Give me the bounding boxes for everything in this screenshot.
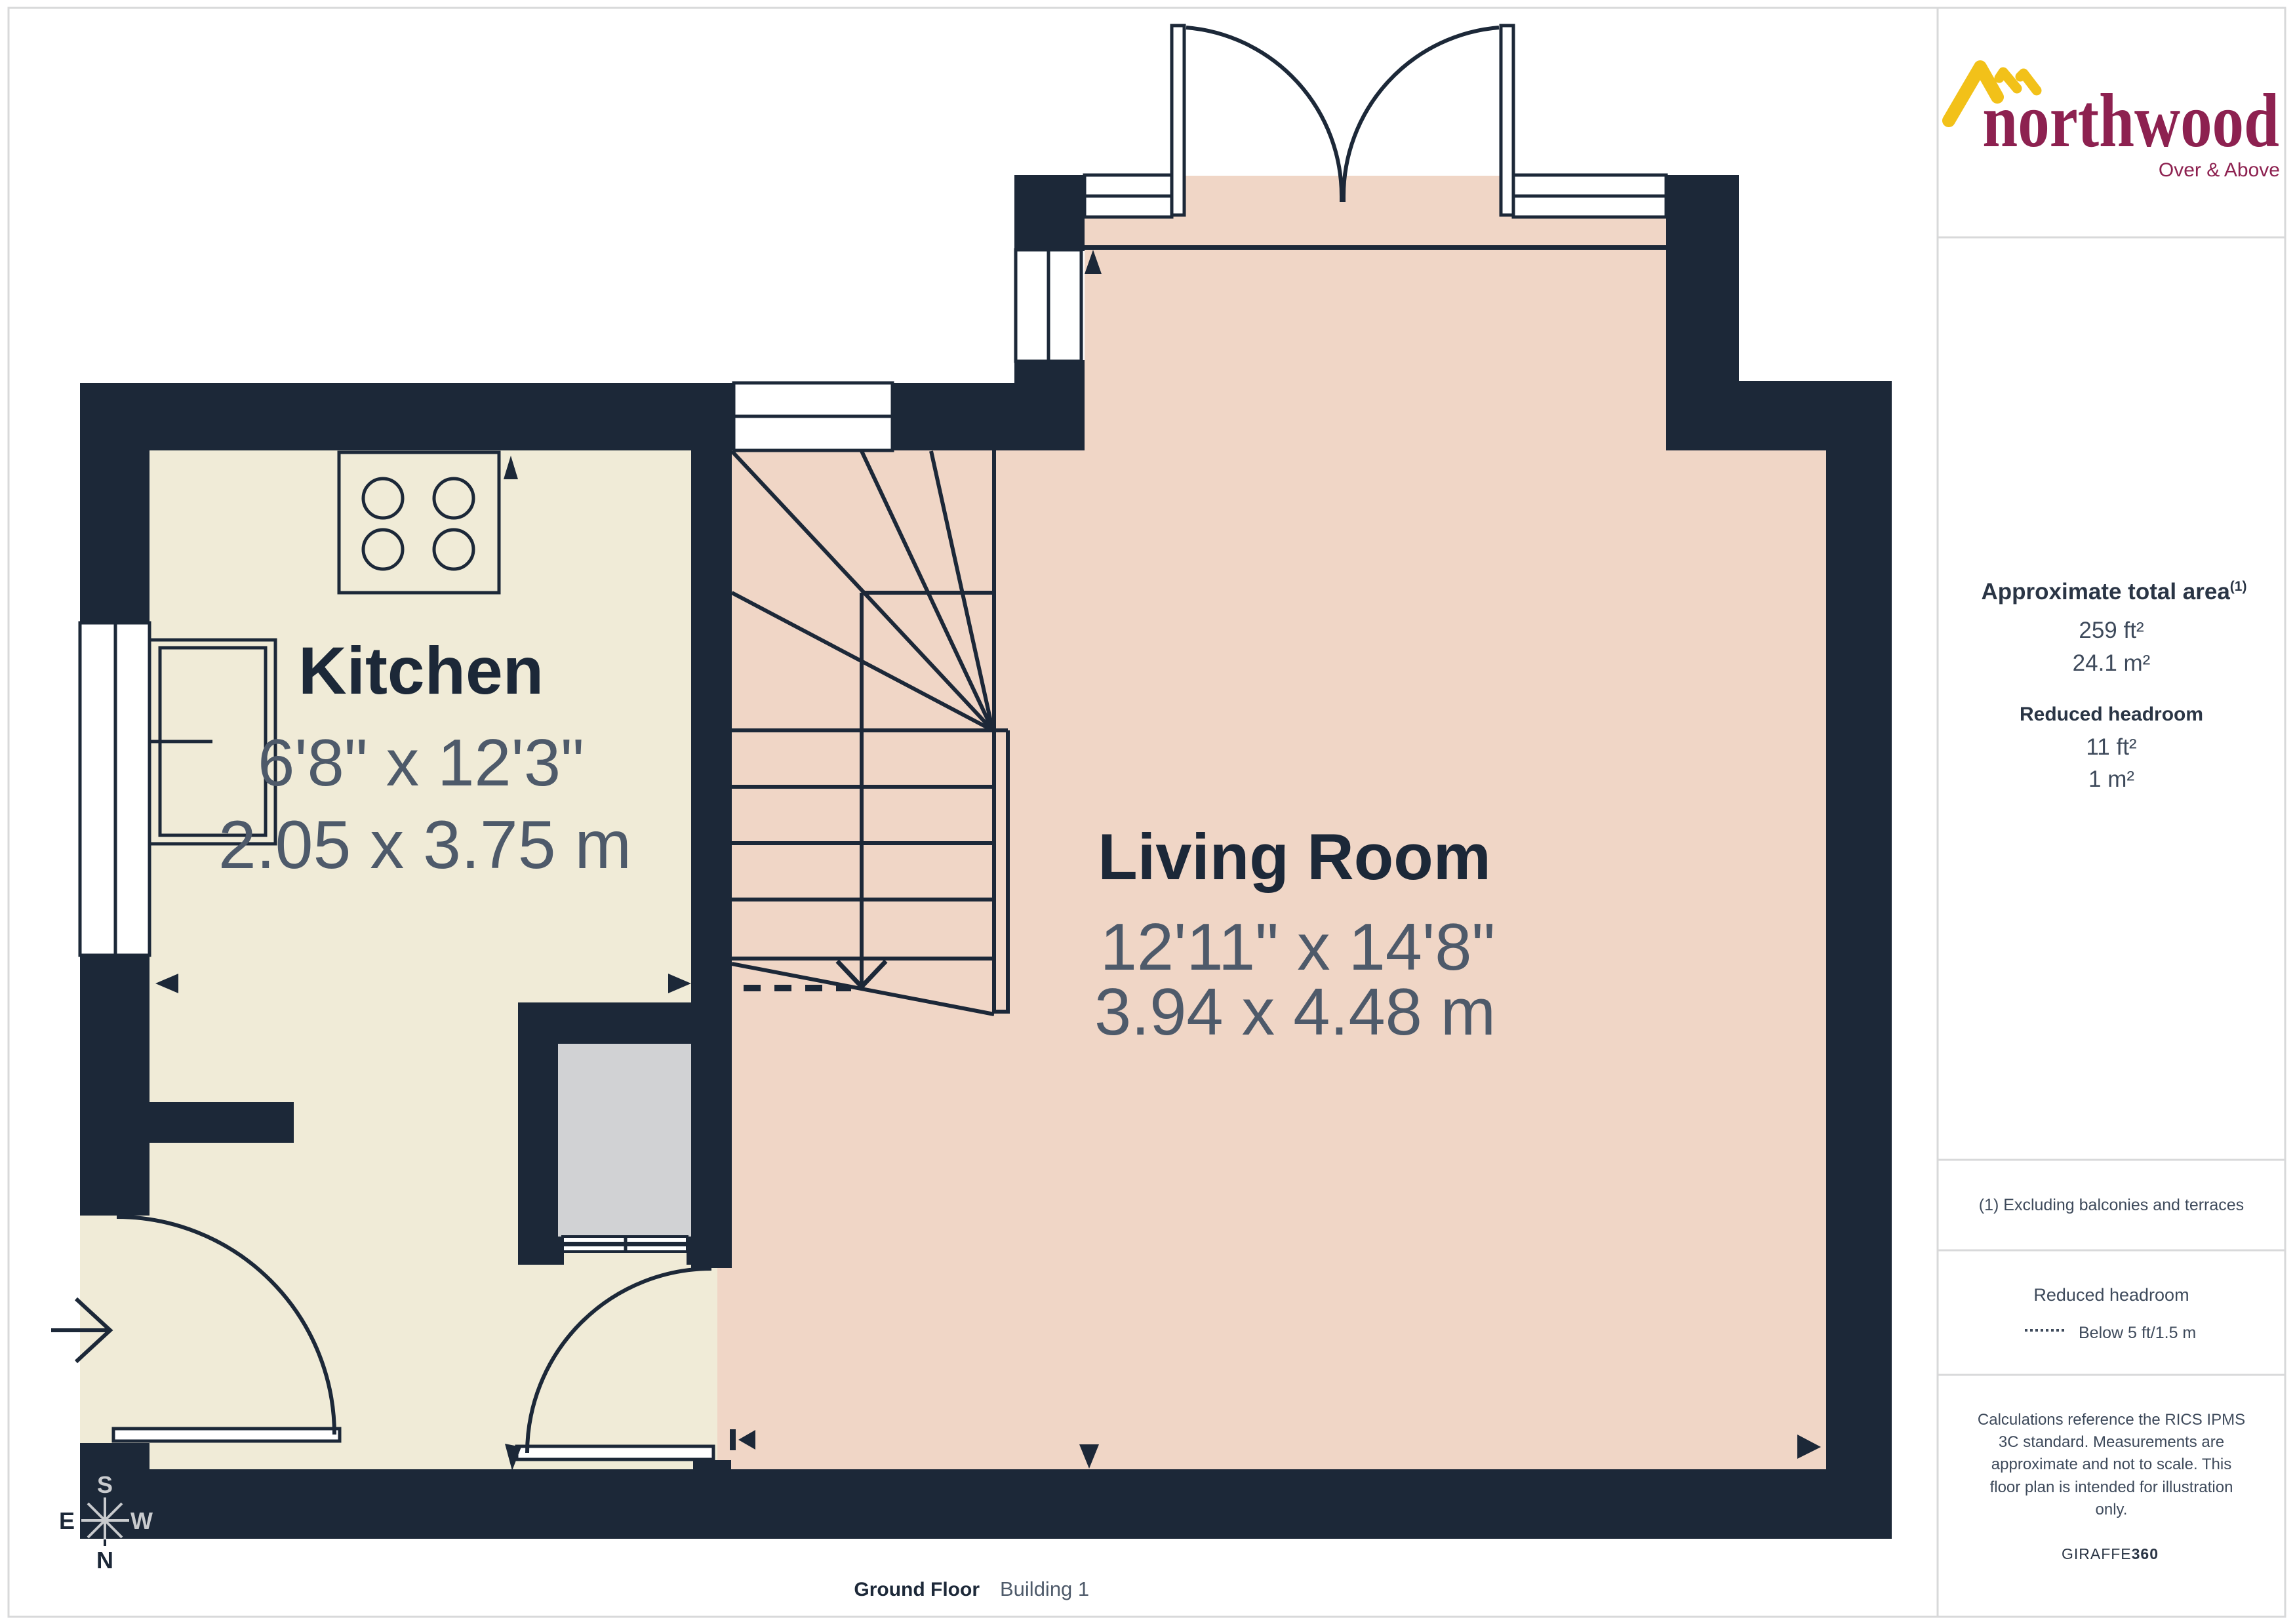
svg-text:Calculations reference the RIC: Calculations reference the RICS IPMS [1978, 1411, 2245, 1429]
svg-text:12'11" x 14'8": 12'11" x 14'8" [1100, 911, 1496, 984]
svg-text:1 m²: 1 m² [2088, 766, 2134, 792]
svg-text:northwood: northwood [1982, 79, 2279, 163]
svg-text:approximate and not to scale.: approximate and not to scale. This [1991, 1456, 2231, 1473]
svg-text:Kitchen: Kitchen [298, 633, 544, 708]
svg-text:Over & Above: Over & Above [2159, 159, 2280, 181]
svg-text:3C standard. Measurements are: 3C standard. Measurements are [1999, 1433, 2224, 1451]
svg-text:E: E [59, 1507, 75, 1534]
svg-text:N: N [96, 1547, 113, 1574]
svg-text:Ground Floor: Ground Floor [854, 1579, 980, 1600]
svg-text:Approximate total area(1): Approximate total area(1) [1982, 579, 2247, 604]
svg-text:Living Room: Living Room [1098, 820, 1490, 893]
svg-text:W: W [130, 1507, 153, 1534]
svg-text:floor plan is intended for ill: floor plan is intended for illustration [1990, 1478, 2233, 1496]
svg-text:24.1 m²: 24.1 m² [2073, 650, 2151, 676]
svg-text:6'8" x 12'3": 6'8" x 12'3" [258, 726, 584, 800]
svg-text:S: S [97, 1471, 113, 1498]
svg-text:Building 1: Building 1 [1000, 1577, 1089, 1600]
svg-text:Below 5 ft/1.5 m: Below 5 ft/1.5 m [2079, 1324, 2196, 1342]
svg-text:only.: only. [2096, 1501, 2128, 1518]
svg-text:Reduced headroom: Reduced headroom [2033, 1285, 2189, 1305]
svg-text:3.94 x 4.48 m: 3.94 x 4.48 m [1094, 976, 1496, 1049]
svg-text:259 ft²: 259 ft² [2079, 618, 2144, 643]
svg-text:11 ft²: 11 ft² [2086, 734, 2136, 760]
svg-text:(1) Excluding balconies and te: (1) Excluding balconies and terraces [1979, 1196, 2244, 1214]
svg-text:2.05 x 3.75 m: 2.05 x 3.75 m [218, 807, 631, 883]
svg-text:Reduced headroom: Reduced headroom [2020, 703, 2203, 725]
svg-text:GIRAFFE360: GIRAFFE360 [2062, 1545, 2159, 1562]
